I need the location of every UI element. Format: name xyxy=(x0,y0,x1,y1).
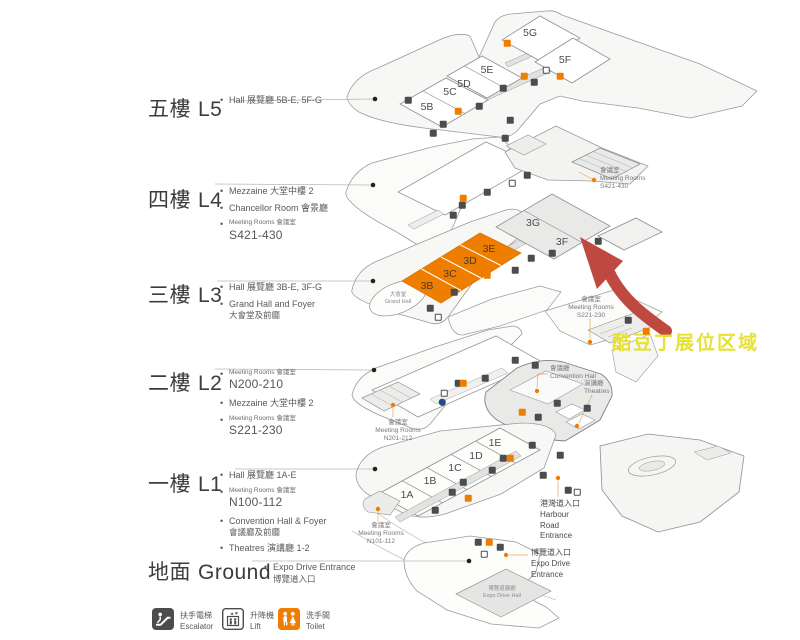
escalator-icon xyxy=(625,317,632,324)
toilet-icon xyxy=(278,608,300,630)
hall-label-5d: 5D xyxy=(457,78,470,90)
escalator-icon xyxy=(557,452,564,459)
bullet-item: Expo Drive Entrance博覽道入口 xyxy=(264,562,424,585)
floor-title-l5: 五樓L5 xyxy=(148,93,222,123)
map-label-expo-drive-entrance: 博覽道入口Expo DriveEntrance xyxy=(531,548,571,580)
bullet-item: Chancellor Room 會景廳 xyxy=(220,203,380,215)
legend-label-en: Escalator xyxy=(180,621,213,632)
escalator-icon xyxy=(535,414,542,421)
toilet-icon xyxy=(460,195,467,202)
toilet-icon xyxy=(504,40,511,47)
floor-l5-bullets: Hall 展覽廳 5B-E, 5F-G xyxy=(220,95,380,112)
bullet-item: Grand Hall and Foyer大會堂及前廳 xyxy=(220,299,380,322)
hall-label-5c: 5C xyxy=(443,86,456,98)
legend-label-zh: 升降機 xyxy=(250,610,274,621)
legend-lift: 升降機Lift xyxy=(222,608,274,632)
hall-label-5f: 5F xyxy=(559,54,571,66)
lift-icon xyxy=(574,489,581,496)
escalator-icon xyxy=(152,608,174,630)
escalator-icon xyxy=(450,212,457,219)
hall-label-1e: 1E xyxy=(489,437,502,449)
toilet-icon xyxy=(484,272,491,279)
toilet-icon xyxy=(486,539,493,546)
floor-title-l3: 三樓L3 xyxy=(148,279,222,309)
map-label-convention-hall: 會議廳Convention Hall xyxy=(550,365,596,381)
bullet-item: Theatres 演講廳 1-2 xyxy=(220,543,380,555)
map-label-n201: 會議室Meeting RoomsN201-212 xyxy=(375,419,421,443)
floor-title-ground: 地面Ground xyxy=(148,556,271,586)
bullet-item: Hall 展覽廳 5B-E, 5F-G xyxy=(220,95,380,107)
bullet-item: Convention Hall & Foyer會議廳及前廳 xyxy=(220,516,380,539)
escalator-icon xyxy=(497,544,504,551)
map-label-harbour-road-entrance: 港灣道入口HarbourRoadEntrance xyxy=(540,499,580,542)
escalator-icon xyxy=(500,85,507,92)
hall-label-3f: 3F xyxy=(556,236,568,248)
escalator-icon xyxy=(540,472,547,479)
legend-escalator: 扶手電梯Escalator xyxy=(152,608,213,632)
escalator-icon xyxy=(512,267,519,274)
escalator-icon xyxy=(451,289,458,296)
info-icon xyxy=(439,399,446,406)
floor-ground-bullets: Expo Drive Entrance博覽道入口 xyxy=(264,562,424,590)
bullet-item: Mezzaine 大堂中樓 2 xyxy=(220,186,380,198)
escalator-icon xyxy=(489,467,496,474)
escalator-icon xyxy=(482,375,489,382)
escalator-icon xyxy=(584,405,591,412)
bullet-item: Mezzaine 大堂中樓 2 xyxy=(220,398,380,410)
bullet-item: Meeting Rooms 會議室N100-112 xyxy=(220,487,380,511)
escalator-icon xyxy=(460,479,467,486)
lift-icon xyxy=(509,180,516,187)
hall-label-1d: 1D xyxy=(469,450,482,462)
bullet-item: Hall 展覽廳 1A-E xyxy=(220,470,380,482)
hall-label-3d: 3D xyxy=(463,255,476,267)
legend-label-zh: 洗手間 xyxy=(306,610,330,621)
lift-icon xyxy=(441,390,448,397)
toilet-icon xyxy=(643,328,650,335)
escalator-icon xyxy=(430,130,437,137)
escalator-icon xyxy=(528,255,535,262)
legend-toilet: 洗手間Toilet xyxy=(278,608,330,632)
escalator-icon xyxy=(595,238,602,245)
map-label-expo-drive-hall: 博覽道展廳Expo Drive Hall xyxy=(483,586,521,600)
escalator-icon xyxy=(507,117,514,124)
floor-l2-bullets: Meeting Rooms 會議室N200-210 Mezzaine 大堂中樓 … xyxy=(220,369,380,444)
hall-label-1c: 1C xyxy=(448,462,461,474)
map-label-theatres: 演講廳Theatres xyxy=(584,380,610,396)
escalator-icon xyxy=(529,442,536,449)
hall-label-3g: 3G xyxy=(526,217,540,229)
map-label-s221: 會議室Meeting RoomsS221-230 xyxy=(568,296,614,320)
floor-title-l2: 二樓L2 xyxy=(148,367,222,397)
escalator-icon xyxy=(524,172,531,179)
escalator-icon xyxy=(405,97,412,104)
floor-l5-shape xyxy=(347,11,757,137)
hall-label-5g: 5G xyxy=(523,27,537,39)
escalator-icon xyxy=(475,539,482,546)
hall-label-3b: 3B xyxy=(421,280,434,292)
escalator-icon xyxy=(432,507,439,514)
floor-l3-bullets: Hall 展覽廳 3B-E, 3F-G Grand Hall and Foyer… xyxy=(220,282,380,326)
escalator-icon xyxy=(427,305,434,312)
legend-label-zh: 扶手電梯 xyxy=(180,610,213,621)
escalator-icon xyxy=(476,103,483,110)
escalator-icon xyxy=(532,362,539,369)
toilet-icon xyxy=(507,455,514,462)
hall-label-5e: 5E xyxy=(481,64,494,76)
escalator-icon xyxy=(440,121,447,128)
escalator-icon xyxy=(502,135,509,142)
bullet-item: Meeting Rooms 會議室N200-210 xyxy=(220,369,380,393)
toilet-icon xyxy=(465,495,472,502)
escalator-icon xyxy=(484,189,491,196)
legend-label-en: Toilet xyxy=(306,621,330,632)
escalator-icon xyxy=(449,489,456,496)
toilet-icon xyxy=(521,73,528,80)
bullet-item: Meeting Rooms 會議室S421-430 xyxy=(220,219,380,243)
escalator-icon xyxy=(512,357,519,364)
floor-title-l1: 一樓L1 xyxy=(148,468,222,498)
map-label-n101: 會議室Meeting RoomsN101-112 xyxy=(358,522,404,546)
lift-icon xyxy=(543,67,550,74)
toilet-icon xyxy=(455,108,462,115)
toilet-icon xyxy=(519,409,526,416)
hall-label-3c: 3C xyxy=(443,268,456,280)
hall-label-5b: 5B xyxy=(421,101,434,113)
hall-label-1b: 1B xyxy=(424,475,437,487)
escalator-icon xyxy=(459,202,466,209)
floor-l1-bullets: Hall 展覽廳 1A-E Meeting Rooms 會議室N100-112 … xyxy=(220,470,380,560)
lift-icon xyxy=(435,314,442,321)
bullet-item: Meeting Rooms 會議室S221-230 xyxy=(220,415,380,439)
floor-title-l4: 四樓L4 xyxy=(148,184,222,214)
escalator-icon xyxy=(549,250,556,257)
lift-icon xyxy=(222,608,244,630)
toilet-icon xyxy=(557,73,564,80)
booth-area-annotation: 酷豆丁展位区域 xyxy=(612,328,759,355)
legend-label-en: Lift xyxy=(250,621,274,632)
hall-label-3e: 3E xyxy=(483,243,496,255)
map-label-s421: 會議室Meeting RoomsS421-430 xyxy=(600,167,646,191)
floor-l4-bullets: Mezzaine 大堂中樓 2 Chancellor Room 會景廳 Meet… xyxy=(220,186,380,248)
map-label-grand-hall: 大會堂Grand Hall xyxy=(385,292,411,306)
hall-label-1a: 1A xyxy=(401,489,414,501)
bullet-item: Hall 展覽廳 3B-E, 3F-G xyxy=(220,282,380,294)
lift-icon xyxy=(481,551,488,558)
floorplan-canvas: 五樓L5 四樓L4 三樓L3 二樓L2 一樓L1 地面Ground Hall 展… xyxy=(0,0,800,640)
escalator-icon xyxy=(500,455,507,462)
escalator-icon xyxy=(554,400,561,407)
toilet-icon xyxy=(460,380,467,387)
escalator-icon xyxy=(531,79,538,86)
escalator-icon xyxy=(565,487,572,494)
